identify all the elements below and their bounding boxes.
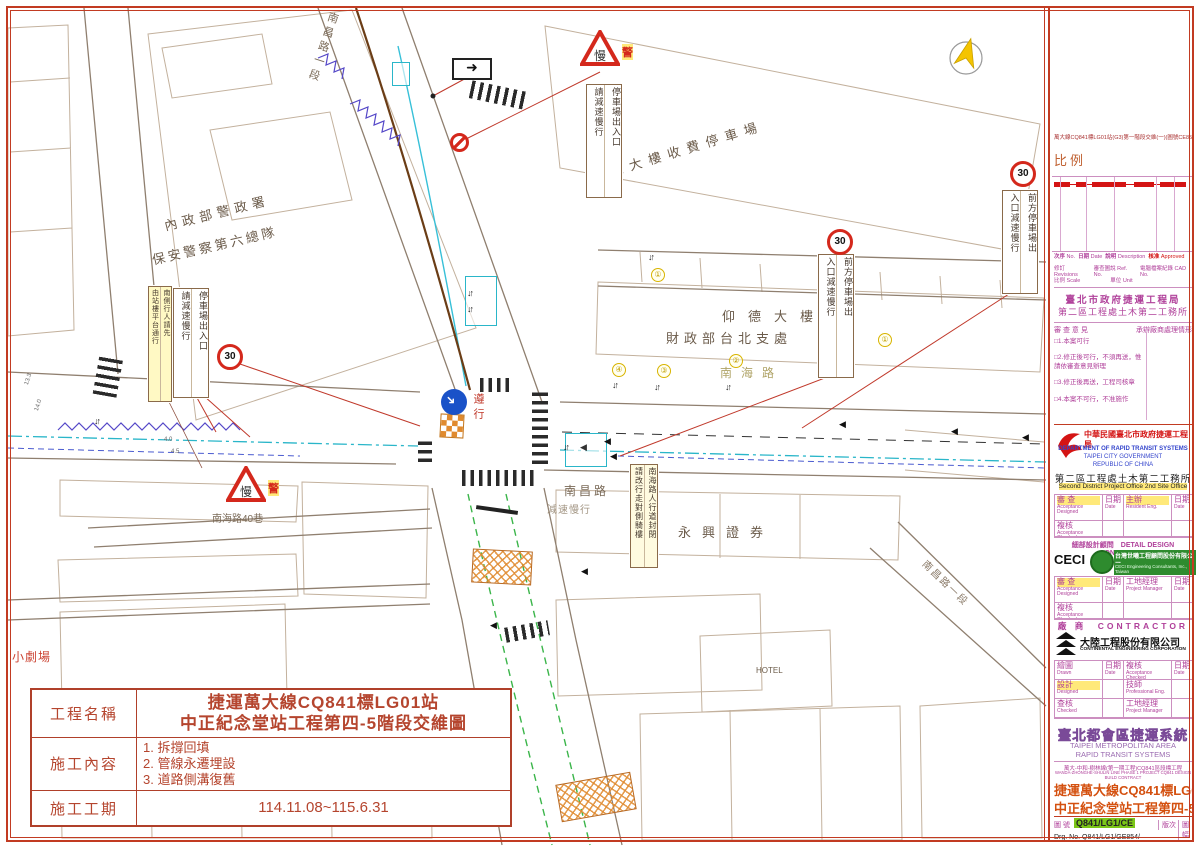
flow-arrow-icon: ◀ xyxy=(581,566,588,577)
contractor-header: 廠 商 CONTRACTOR xyxy=(1054,620,1192,632)
construction-hatch-zone-1 xyxy=(471,548,533,585)
sign-text-col-left: 請減速慢行 xyxy=(174,289,191,397)
building-label: 仰德大樓 xyxy=(722,306,826,325)
review-checkbox-list: □1.本案可行□2.修正後可行，不須再送，惟請依審查意見辦理□3.修正後再送，工… xyxy=(1054,338,1144,412)
dimension-text: 4.0 xyxy=(164,437,172,443)
review-checkbox-item: □1.本案可行 xyxy=(1054,338,1144,346)
two-way-arrow-icon: ↓↑ xyxy=(654,382,659,392)
work-content-item: 2. 管線永遷埋設 xyxy=(143,756,504,772)
sign-text-col-right: 前方停車場出 xyxy=(1020,191,1038,293)
cec-block: 大陸工程股份有限公司 CONTINENTAL ENGINEERING CORPO… xyxy=(1054,632,1192,656)
signature-cell: 複核Acceptance Checked xyxy=(1055,521,1103,537)
signature-cell: 繪圖Drawn xyxy=(1055,661,1103,680)
two-way-arrow-icon: ↓↑ xyxy=(467,304,472,314)
two-way-arrow-icon: ↓↑ xyxy=(467,288,472,298)
keep-right-icon xyxy=(441,389,467,415)
project-name-value: 捷運萬大線CQ841標LG01站 中正紀念堂站工程第四-5階段交維圖 xyxy=(137,690,510,737)
system-title-en1: TAIPEI METROPOLITAN AREA xyxy=(1054,741,1192,750)
sign-text-col-right: 停車場出入口 xyxy=(191,289,209,397)
street-label: 小劇場 xyxy=(12,648,51,665)
signature-grid-1: 審 查Acceptance Designed日期Date主辦Resident E… xyxy=(1054,494,1194,538)
two-way-arrow-icon: ↓↑ xyxy=(612,380,617,390)
drawing-number-row: 圖 號 Q841/LG1/CE Drg. No. Q841/LG1/GE854/… xyxy=(1054,816,1192,848)
police-warning-badge: 警 xyxy=(622,44,633,60)
review-checkbox-item: □2.修正後可行，不須再送，惟請依審查意見辦理 xyxy=(1054,354,1144,371)
crosswalk-west xyxy=(418,438,432,462)
title-block-panel: 萬大線CQ841標LG01站(G3)第一階段交維(一)(圖號CE854-1)之詳… xyxy=(1048,8,1196,840)
triangle-icon: 慢 xyxy=(226,466,266,504)
flow-arrow-icon: ◀ xyxy=(604,436,611,447)
street-label: 南昌路 xyxy=(564,482,609,499)
signature-cell xyxy=(1172,603,1193,619)
lane-number-badge: ② xyxy=(729,354,743,368)
review-title-2: 第二區工程處土木第二工務所 xyxy=(1054,305,1192,318)
speed-limit-30-sign: 30 xyxy=(217,344,243,370)
sign-text-col-right: 停車場出入口 xyxy=(604,85,622,197)
sign-text-col-left: 入口減速慢行 xyxy=(1003,191,1020,293)
signature-cell: 複核Acceptance Checked xyxy=(1055,603,1103,619)
signature-cell xyxy=(1172,680,1193,699)
revision-label: 版次 xyxy=(1158,820,1176,830)
svg-text:慢: 慢 xyxy=(240,485,252,499)
signature-cell: 複核Acceptance Checked xyxy=(1124,661,1172,680)
drawing-title-line1: 捷運萬大線CQ841標LG01站 xyxy=(1054,780,1192,799)
revision-grid xyxy=(1052,176,1192,252)
slow-warning-triangle: 慢 警 xyxy=(226,466,266,504)
divider-1 xyxy=(1054,424,1192,425)
project-name-line1: 捷運萬大線CQ841標LG01站 xyxy=(143,692,504,713)
signature-cell: 主辦Resident Eng. xyxy=(1124,495,1172,521)
signature-cell: 日期Date xyxy=(1103,661,1124,680)
review-checkbox-item: □3.修正後再送，工程司核章 xyxy=(1054,379,1144,387)
project-name-label: 工程名稱 xyxy=(32,690,137,737)
work-period-label: 施工工期 xyxy=(32,791,137,825)
vertical-sign-textbox: 停車場出入口 請減速慢行 xyxy=(173,288,209,398)
work-period-row: 施工工期 114.11.08~115.6.31 xyxy=(32,790,510,825)
bus-stop-box: ◀ xyxy=(565,433,607,467)
work-content-row: 施工內容 1. 拆撐回填2. 管線永遷埋設3. 道路側溝復舊 xyxy=(32,737,510,791)
signature-cell: 日期Date xyxy=(1103,495,1124,521)
lane-number-badge: ① xyxy=(651,268,665,282)
signature-cell xyxy=(1103,699,1124,718)
small-cyan-box xyxy=(392,62,410,86)
signature-cell: 日期Date xyxy=(1103,577,1124,603)
signature-cell xyxy=(1103,603,1124,619)
drts-en2: TAIPEI CITY GOVERNMENT xyxy=(1054,454,1192,460)
signature-cell: 審 查Acceptance Designed xyxy=(1055,495,1103,521)
vertical-sign-textbox: 南側行人請先 由站樓平台通行 xyxy=(148,286,172,402)
drts-en3: REPUBLIC OF CHINA xyxy=(1054,462,1192,468)
street-label: 南海路 xyxy=(720,364,783,381)
flow-arrow-icon: ◀ xyxy=(610,451,617,462)
vertical-sign-textbox: 停車場出入口 請減速慢行 xyxy=(586,84,622,198)
sign-text-col-right: 南海路人行道封閉 xyxy=(644,465,658,567)
drawing-no-highlighted: Q841/LG1/CE xyxy=(1074,818,1135,828)
review-title-1: 臺北市政府捷運工程局 xyxy=(1054,292,1192,306)
signature-cell xyxy=(1124,521,1172,537)
speed-limit-30-sign: 30 xyxy=(1010,161,1036,187)
revision-header-row: 次序 No. 日期 Date 說明 Description 核准 Approve… xyxy=(1054,252,1192,260)
vertical-sign-textbox: 前方停車場出 入口減速慢行 xyxy=(818,254,854,378)
signature-cell: 工地經理Project Manager xyxy=(1124,699,1172,718)
work-content-list: 1. 拆撐回填2. 管線永遷埋設3. 道路側溝復舊 xyxy=(137,738,510,791)
signature-cell xyxy=(1103,521,1124,537)
signature-cell: 設計Designed xyxy=(1055,680,1103,699)
review-divider xyxy=(1146,332,1147,420)
vertical-sign-textbox: 前方停車場出 入口減速慢行 xyxy=(1002,190,1038,294)
lane-number-badge: ④ xyxy=(612,363,626,377)
drawing-no-full: Drg. No. Q841/LG1/GE854/ xyxy=(1054,834,1140,841)
work-content-label: 施工內容 xyxy=(32,738,137,791)
signature-grid-2: 審 查Acceptance Designed日期Date工地經理Project … xyxy=(1054,576,1194,620)
review-columns-header: 審 查 意 見 承辦廠商處理情形 xyxy=(1054,322,1192,335)
lane-number-badge: ① xyxy=(878,333,892,347)
street-label: 減速慢行 xyxy=(547,501,591,516)
slow-warning-triangle: 慢 警 xyxy=(580,30,620,68)
traffic-maintenance-drawing-sheet: { "map": { "building_labels": [ {"t":"內政… xyxy=(0,0,1200,848)
crosswalk-south xyxy=(462,470,534,486)
drawing-title-line2: 中正紀念堂站工程第四-5階段交維圖 xyxy=(1054,798,1192,817)
sign-text-col-right: 前方停車場出 xyxy=(836,255,854,377)
sign-text-col-left: 入口減速慢行 xyxy=(819,255,836,377)
ceci-abbr: CECI xyxy=(1054,552,1085,567)
cec-en: CONTINENTAL ENGINEERING CORPORATION xyxy=(1080,647,1186,652)
building-label: 永興證券 xyxy=(678,522,774,541)
sheet-size-label: 圖幅 xyxy=(1178,820,1192,840)
ceci-en: CECI Engineering Consultants, Inc., Taiw… xyxy=(1114,563,1196,575)
signature-cell xyxy=(1124,603,1172,619)
signature-cell: 審 查Acceptance Designed xyxy=(1055,577,1103,603)
signature-cell: 查核Checked xyxy=(1055,699,1103,718)
flow-arrow-icon: ◀ xyxy=(1022,432,1029,443)
site-office-en: Second District Project Office 2nd Site … xyxy=(1054,483,1192,490)
project-name-line2: 中正紀念堂站工程第四-5階段交維圖 xyxy=(143,713,504,734)
lane-number-badge: ③ xyxy=(657,364,671,378)
signature-cell: 日期Date xyxy=(1172,495,1193,521)
crosswalk-east xyxy=(532,392,548,464)
drts-en1: DEPARTMENT OF RAPID TRANSIT SYSTEMS xyxy=(1054,446,1192,452)
reference-note: 萬大線CQ841標LG01站(G3)第一階段交維(一)(圖號CE854-1)之詳… xyxy=(1054,133,1192,141)
oneway-leader-dot xyxy=(431,94,436,99)
signature-grid-3: 繪圖Drawn日期Date複核Acceptance Checked日期Date設… xyxy=(1054,660,1194,719)
one-way-arrow-sign: ➜ xyxy=(452,58,492,80)
flow-arrow-icon: ◀ xyxy=(490,620,497,631)
two-way-arrow-icon: ↓↑ xyxy=(725,382,730,392)
review-checkbox-item: □4.本案不可行，不准施作 xyxy=(1054,396,1144,404)
signature-cell xyxy=(1103,680,1124,699)
lane-box xyxy=(465,276,497,326)
sign-text-col-left: 請改行走對側騎樓 xyxy=(631,465,644,567)
signature-cell: 工地經理Project Manager xyxy=(1124,577,1172,603)
building-label: HOTEL xyxy=(756,666,783,675)
flow-arrow-icon: ◀ xyxy=(839,419,846,430)
ceci-block: CECI 台灣世曦工程顧問股份有限公司 CECI Engineering Con… xyxy=(1054,550,1192,572)
work-content-item: 3. 道路側溝復舊 xyxy=(143,772,504,788)
street-label: 南海路40巷 xyxy=(212,510,263,525)
signature-cell: 技師Professional Eng. xyxy=(1124,680,1172,699)
scale-label: 比例 xyxy=(1054,150,1192,169)
cec-logo-icon xyxy=(1056,632,1076,656)
signature-cell: 日期Date xyxy=(1172,577,1193,603)
keep-right-label: 遵行 xyxy=(470,393,486,423)
project-line-en: WANDA-ZHONGHE-SHULIN LINE PHASE 1 PROJEC… xyxy=(1054,770,1192,780)
two-way-arrow-icon: ↓↑ xyxy=(94,416,99,426)
sign-text-col-right: 南側行人請先 xyxy=(160,287,172,401)
speed-limit-30-sign: 30 xyxy=(827,229,853,255)
north-compass xyxy=(950,36,982,74)
vertical-sign-textbox: 南海路人行道封閉 請改行走對側騎樓 xyxy=(630,464,658,568)
project-name-row: 工程名稱 捷運萬大線CQ841標LG01站 中正紀念堂站工程第四-5階段交維圖 xyxy=(32,690,510,737)
signature-cell xyxy=(1172,521,1193,537)
police-warning-badge: 警 xyxy=(268,480,279,496)
sign-text-col-left: 由站樓平台通行 xyxy=(149,287,160,401)
building-label: 財政部台北支處 xyxy=(666,328,792,347)
two-way-arrow-icon: ↓↑ xyxy=(648,252,653,262)
system-title-en2: RAPID TRANSIT SYSTEMS xyxy=(1054,750,1192,759)
crosswalk-north xyxy=(480,378,514,392)
work-period-value: 114.11.08~115.6.31 xyxy=(137,791,510,825)
ceci-logo-icon xyxy=(1090,550,1114,574)
project-title-table: 工程名稱 捷運萬大線CQ841標LG01站 中正紀念堂站工程第四-5階段交維圖 … xyxy=(30,688,512,827)
sign-text-col-left: 請減速慢行 xyxy=(587,85,604,197)
svg-text:慢: 慢 xyxy=(594,49,606,63)
signature-cell xyxy=(1172,699,1193,718)
signature-cell: 日期Date xyxy=(1172,661,1193,680)
two-way-arrow-icon: ↓↑ xyxy=(563,442,568,452)
flow-arrow-icon: ◀ xyxy=(951,426,958,437)
no-entry-icon xyxy=(450,133,469,152)
scale-unit-row: 比例 Scale 單位 Unit xyxy=(1054,276,1192,288)
work-content-item: 1. 拆撐回填 xyxy=(143,740,504,756)
construction-checker-zone xyxy=(439,413,464,438)
dimension-text: 4.5 xyxy=(171,449,179,455)
triangle-icon: 慢 xyxy=(580,30,620,68)
drawing-no-label: 圖 號 xyxy=(1054,820,1070,830)
